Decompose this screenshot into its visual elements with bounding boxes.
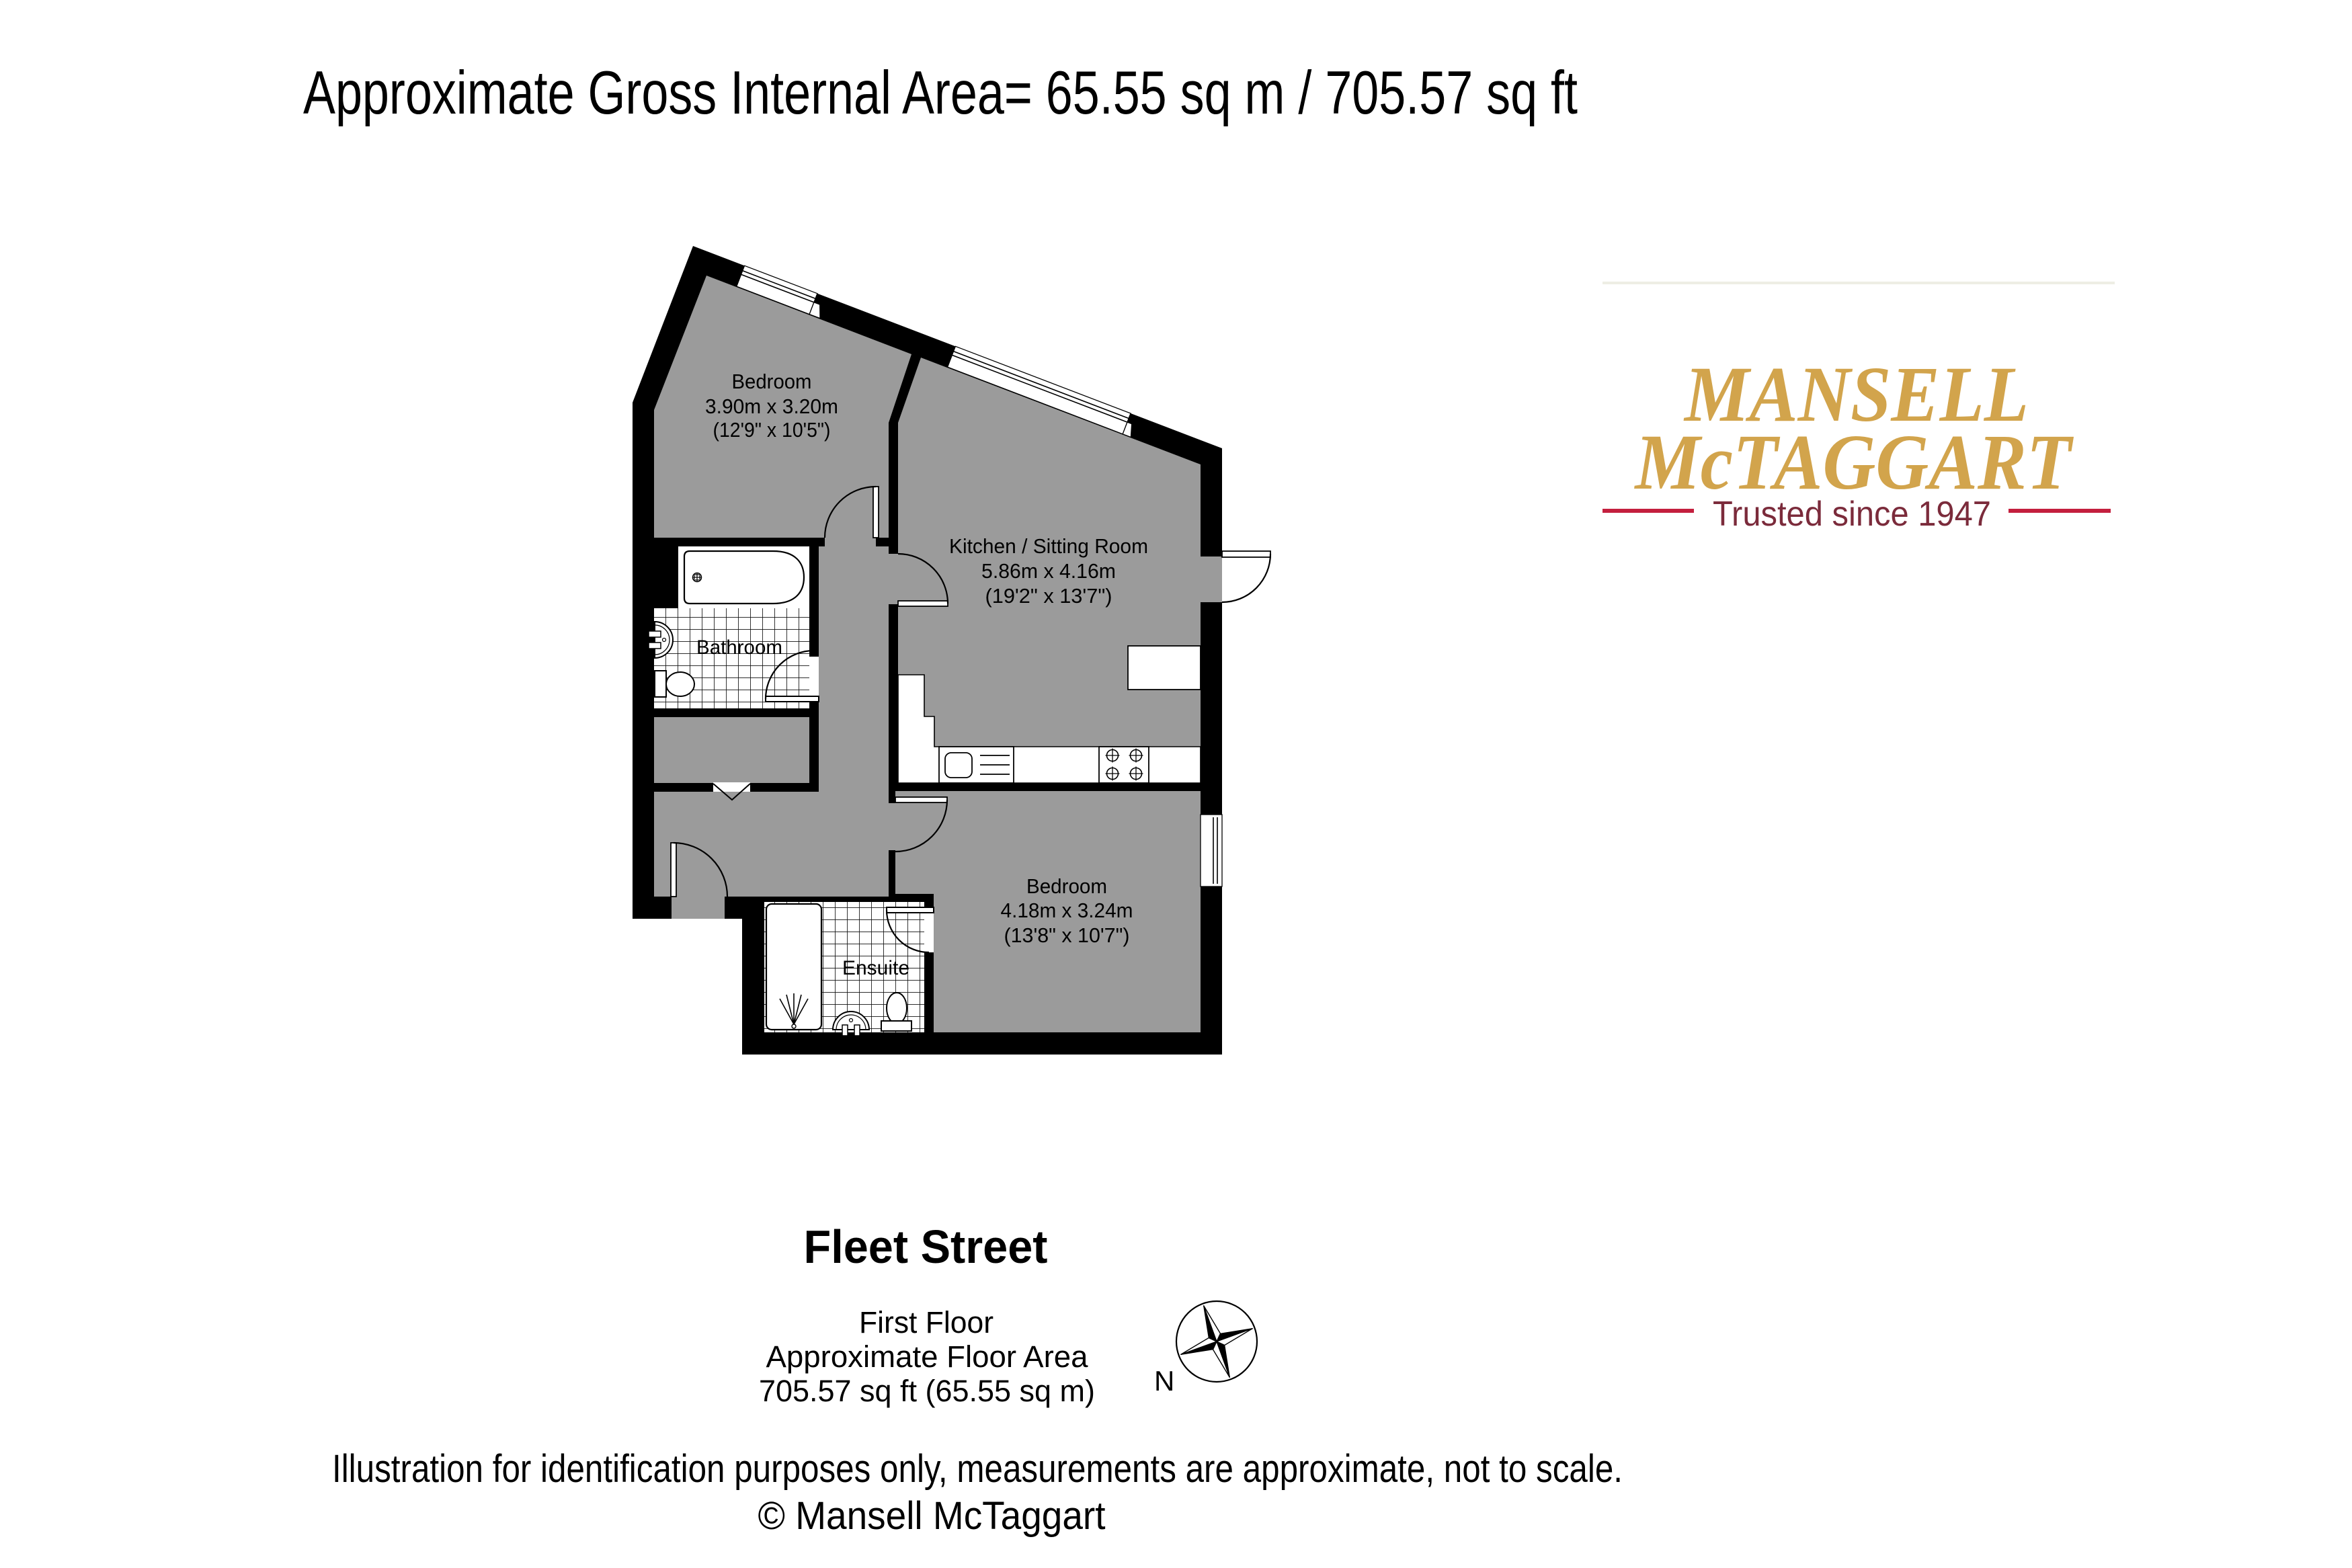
svg-text:First Floor: First Floor — [859, 1305, 993, 1339]
svg-text:N: N — [1154, 1365, 1174, 1397]
svg-text:Trusted since 1947: Trusted since 1947 — [1713, 495, 1991, 534]
svg-text:Illustration for identificatio: Illustration for identification purposes… — [332, 1447, 1623, 1491]
svg-text:Approximate Gross Internal Are: Approximate Gross Internal Area= 65.55 s… — [303, 59, 1578, 127]
svg-text:5.86m x 4.16m: 5.86m x 4.16m — [981, 559, 1116, 583]
svg-text:Bathroom: Bathroom — [696, 636, 782, 659]
svg-text:McTAGGART: McTAGGART — [1634, 418, 2074, 506]
svg-text:(12'9" x 10'5"): (12'9" x 10'5") — [713, 418, 831, 442]
svg-text:3.90m x 3.20m: 3.90m x 3.20m — [705, 395, 838, 418]
svg-text:Fleet Street: Fleet Street — [804, 1221, 1048, 1273]
svg-text:705.57 sq ft (65.55 sq m): 705.57 sq ft (65.55 sq m) — [759, 1374, 1095, 1408]
svg-text:© Mansell McTaggart: © Mansell McTaggart — [758, 1494, 1106, 1538]
svg-text:4.18m x 3.24m: 4.18m x 3.24m — [1001, 899, 1133, 922]
svg-text:Ensuite: Ensuite — [842, 957, 909, 979]
svg-text:(19'2" x 13'7"): (19'2" x 13'7") — [985, 584, 1112, 608]
svg-text:(13'8" x 10'7"): (13'8" x 10'7") — [1004, 923, 1130, 947]
svg-text:Approximate Floor Area: Approximate Floor Area — [766, 1339, 1089, 1374]
svg-text:Bedroom: Bedroom — [732, 370, 812, 393]
svg-text:Bedroom: Bedroom — [1026, 874, 1107, 898]
svg-text:Kitchen / Sitting Room: Kitchen / Sitting Room — [949, 534, 1148, 558]
